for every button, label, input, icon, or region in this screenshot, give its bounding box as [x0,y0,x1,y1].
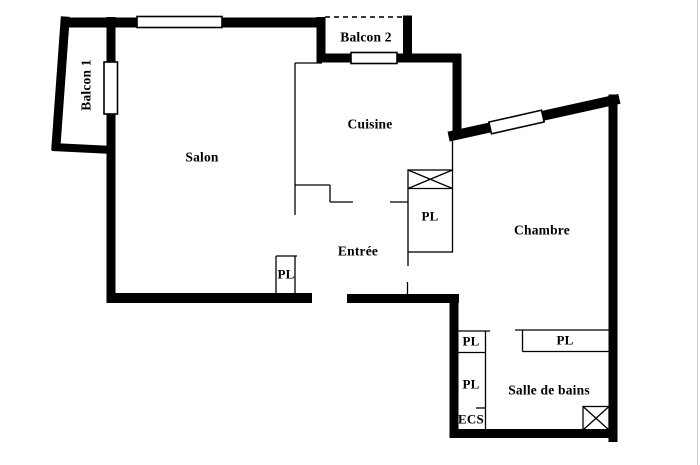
room-label-salle-de-bains: Salle de bains [508,383,590,397]
room-label-entree: Entrée [338,244,378,258]
closet-label-chambre-pl: PL [556,334,573,347]
closet-label-ecs: ECS [458,413,484,426]
room-label-balcon2: Balcon 2 [340,30,391,44]
closet-label-bath-pl-2: PL [462,378,479,391]
window-chambre-diagonal [489,110,544,134]
floor-plan-drawing [0,0,700,465]
floor-plan: Balcon 1 Balcon 2 Salon Cuisine Entrée C… [0,0,700,465]
closet-label-entree-pl: PL [421,210,438,223]
room-label-chambre: Chambre [514,223,570,237]
room-label-salon: Salon [185,150,218,164]
page-edge-line [697,0,698,465]
closet-label-salon-pl: PL [277,268,294,281]
wall-balcon1-bottom [52,147,113,150]
closet-label-bath-pl-1: PL [462,335,479,348]
interior-partitions [276,63,609,430]
window-salon-west [104,62,118,114]
window-salon-north [137,17,222,28]
room-label-balcon1: Balcon 1 [79,59,93,110]
window-balcon2 [351,53,397,64]
wall-balcon1-left [56,21,65,146]
room-label-cuisine: Cuisine [348,117,393,131]
